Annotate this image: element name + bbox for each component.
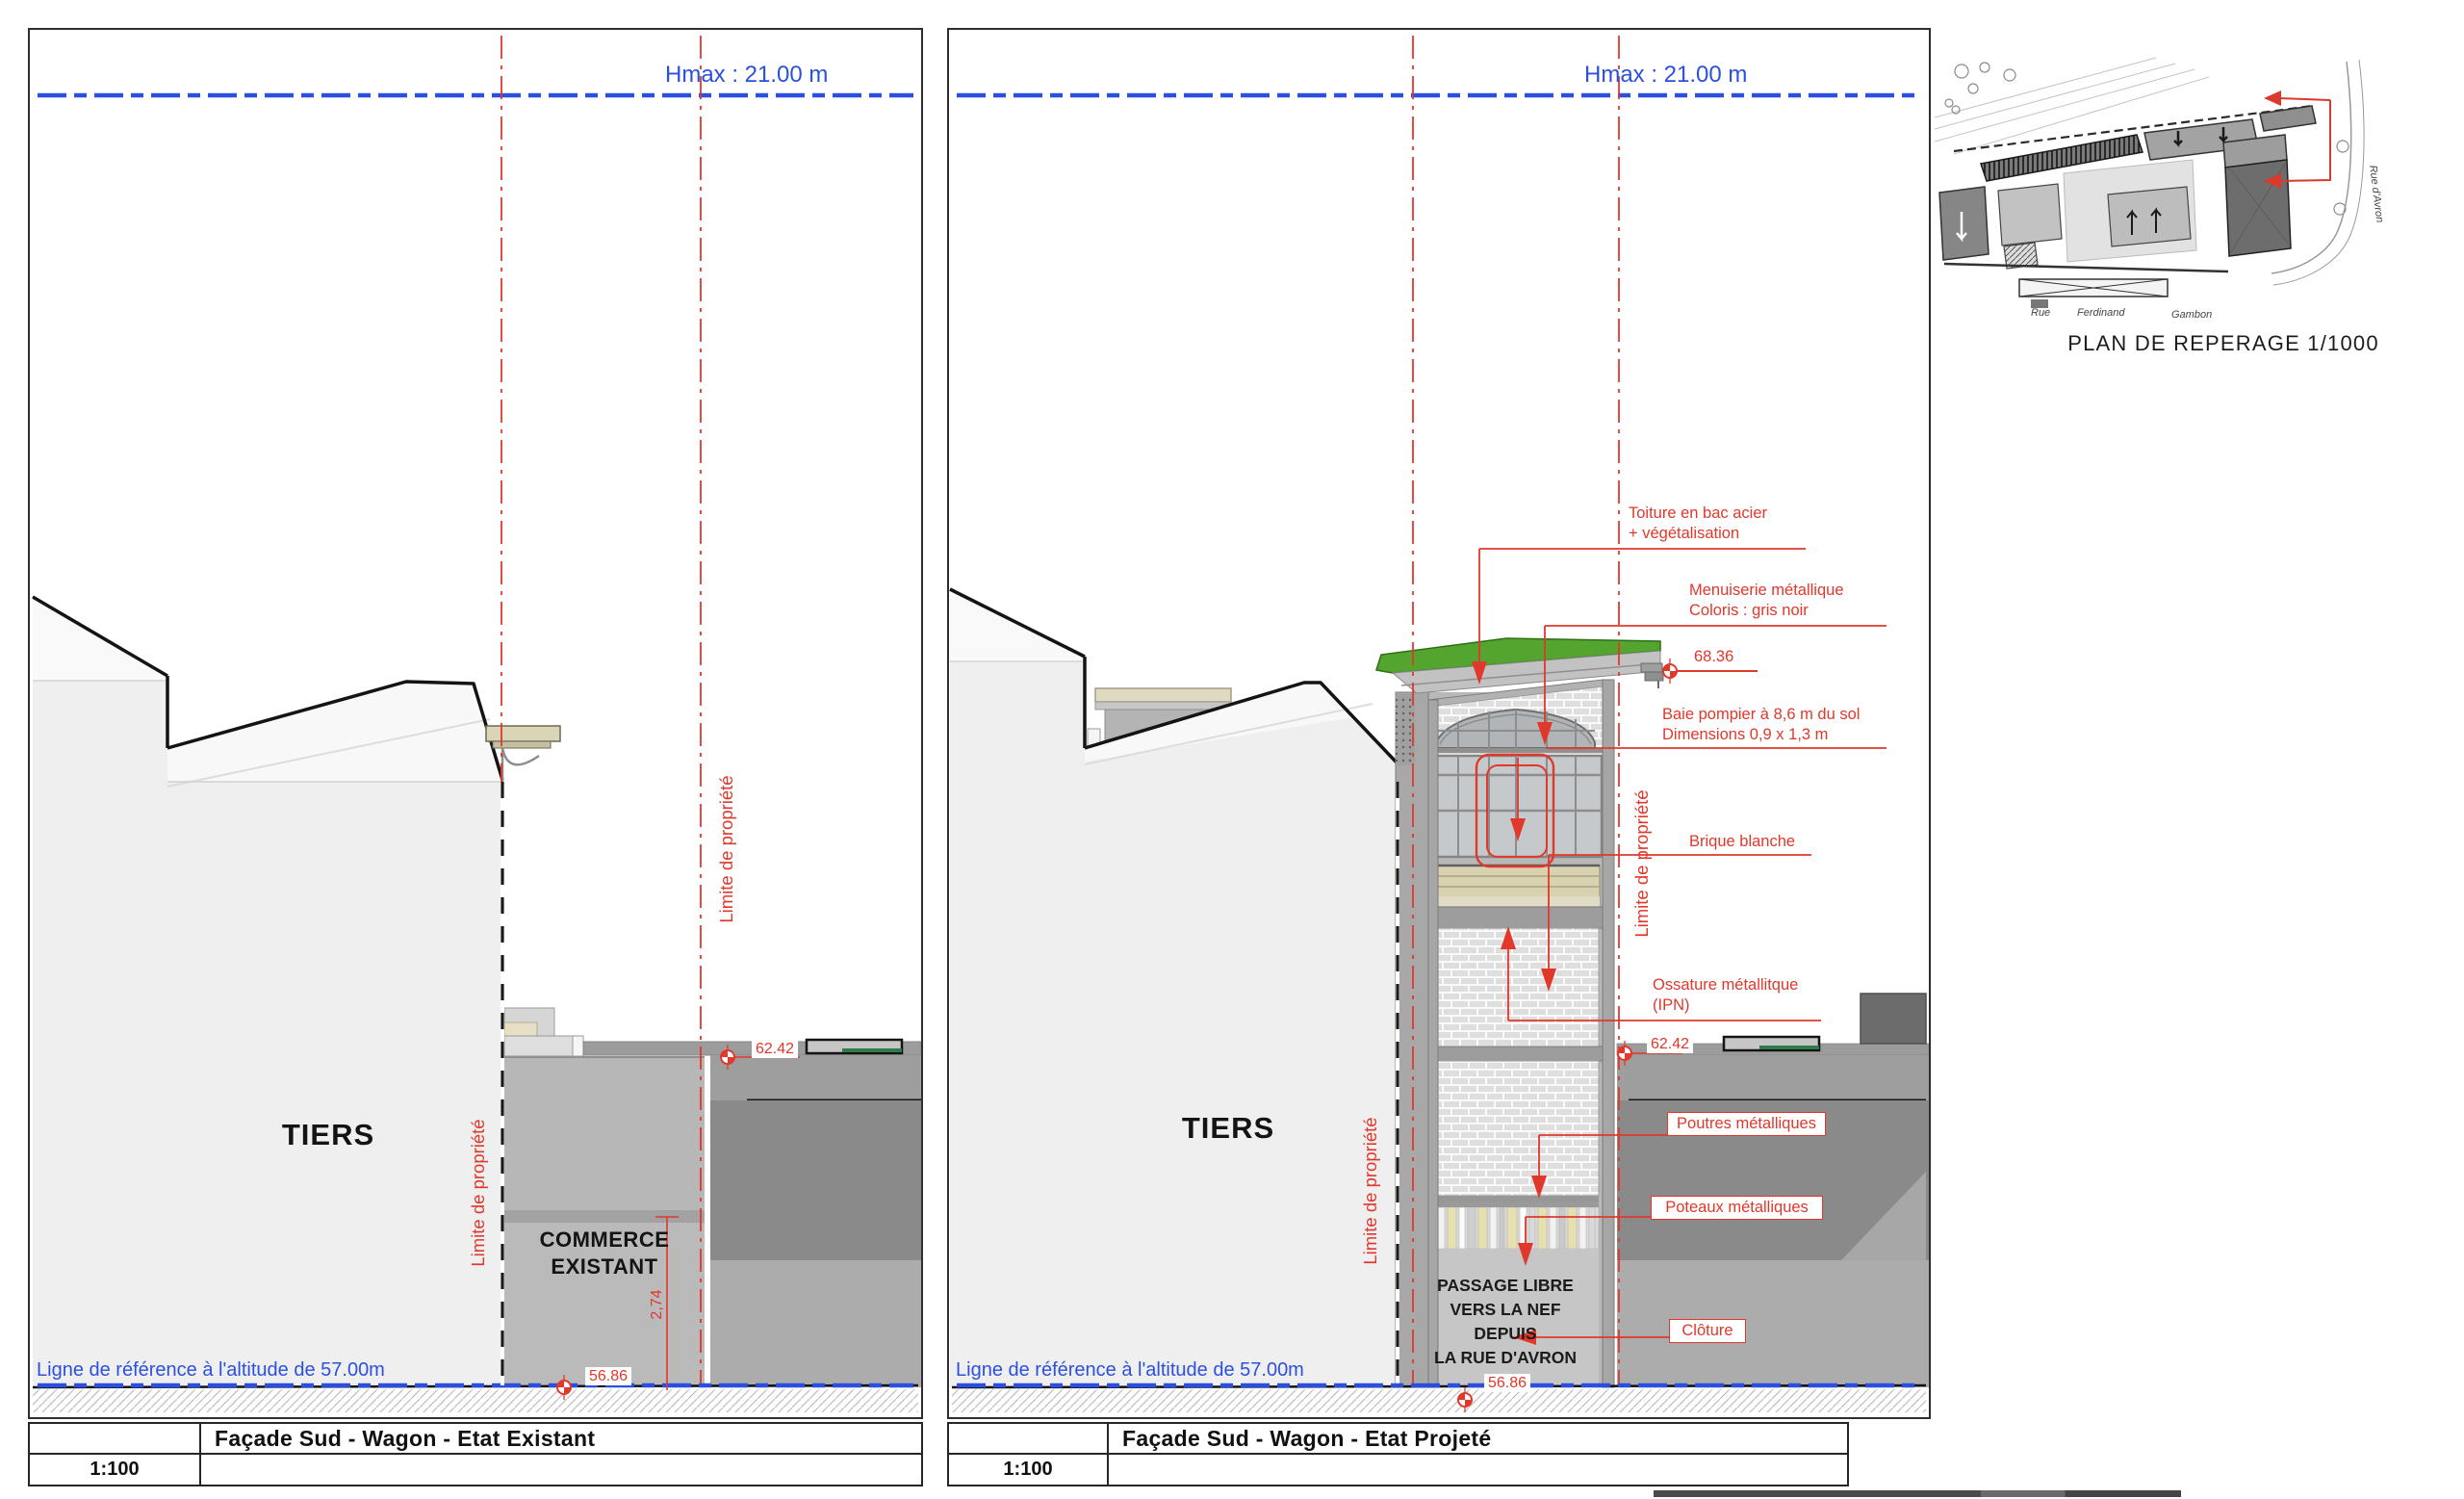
scale-cell-empty (201, 1455, 921, 1485)
drawing-title: Façade Sud - Wagon - Etat Projeté (1122, 1426, 1491, 1452)
street-label-rue: Rue (2031, 307, 2050, 319)
level-5686-label: 56.86 (1484, 1374, 1530, 1392)
annotation-cloture: Clôture (1669, 1319, 1746, 1343)
plan-caption: PLAN DE REPERAGE 1/1000 (2040, 331, 2406, 356)
street-label-ferdinand: Ferdinand (2077, 307, 2125, 319)
title-cell-empty (949, 1424, 1109, 1453)
level-5686-label: 56.86 (585, 1367, 631, 1385)
tiers-label: TIERS (1175, 1111, 1281, 1146)
timber-siding (1433, 866, 1600, 907)
passage-line-2: VERS LA NEF DEPUIS (1421, 1298, 1590, 1346)
toiture-line-2: + végétalisation (1629, 524, 1767, 544)
commerce-building (501, 1008, 705, 1387)
property-limit-label-2: Limite de propriété (1630, 758, 1654, 969)
menuiserie-line-2: Coloris : gris noir (1689, 601, 1844, 621)
menuiserie-line-1: Menuiserie métallique (1689, 581, 1844, 601)
annotation-menuiserie: Menuiserie métallique Coloris : gris noi… (1689, 581, 1844, 621)
commerce-label-1: COMMERCE (508, 1228, 701, 1253)
property-limit-label-1: Limite de propriété (467, 1087, 490, 1299)
level-6242-label: 62.42 (1647, 1035, 1693, 1053)
reference-line-label: Ligne de référence à l'altitude de 57.00… (956, 1359, 1304, 1382)
annotation-toiture: Toiture en bac acier + végétalisation (1629, 504, 1767, 544)
annotation-baie: Baie pompier à 8,6 m du sol Dimensions 0… (1662, 705, 1860, 745)
plan-de-reperage: Rue Ferdinand Gambon Rue d'Avron PLAN DE… (1935, 50, 2459, 368)
street-label-gambon: Gambon (2171, 309, 2212, 321)
title-cell-empty (30, 1424, 201, 1453)
passage-label: PASSAGE LIBRE VERS LA NEF DEPUIS LA RUE … (1421, 1274, 1590, 1370)
street-label-avron: Rue d'Avron (2367, 165, 2385, 223)
annotation-poteaux: Poteaux métalliques (1651, 1196, 1823, 1220)
property-limit-label-1: Limite de propriété (1359, 1085, 1382, 1297)
baie-line-1: Baie pompier à 8,6 m du sol (1662, 705, 1860, 725)
passage-line-3: LA RUE D'AVRON (1421, 1346, 1590, 1370)
green-roof (1376, 638, 1663, 693)
drawing-scale: 1:100 (90, 1459, 139, 1481)
column-row (1433, 1203, 1599, 1249)
scale-cell-empty (1109, 1455, 1847, 1485)
hmax-label: Hmax : 21.00 m (1584, 62, 1747, 89)
ground (33, 1385, 918, 1412)
panel-etat-projete: Hmax : 21.00 m TIERS Limite de propriété… (947, 28, 1931, 1419)
panel-etat-existant: Hmax : 21.00 m TIERS Limite de propriété… (28, 28, 923, 1419)
cropped-bottom-content (1654, 1490, 2181, 1497)
ossature-line-2: (IPN) (1653, 995, 1798, 1016)
title-block-projete: Façade Sud - Wagon - Etat Projeté 1:100 (947, 1422, 1849, 1486)
tiers-building (33, 597, 502, 1387)
commerce-label-2: EXISTANT (508, 1254, 701, 1279)
ossature-line-1: Ossature métallitque (1653, 975, 1798, 995)
baie-line-2: Dimensions 0,9 x 1,3 m (1662, 725, 1860, 745)
annotation-brique: Brique blanche (1689, 832, 1795, 852)
annotation-poutres: Poutres métalliques (1667, 1112, 1826, 1136)
drawing-scale: 1:100 (1003, 1459, 1052, 1481)
tiers-label: TIERS (280, 1118, 376, 1152)
drawing-sheet: Hmax : 21.00 m TIERS Limite de propriété… (0, 0, 2464, 1499)
reference-line-label: Ligne de référence à l'altitude de 57.00… (37, 1359, 385, 1382)
title-block-existant: Façade Sud - Wagon - Etat Existant 1:100 (28, 1422, 923, 1486)
plan-buildings (1939, 106, 2316, 308)
level-6836-label: 68.36 (1694, 647, 1733, 667)
passage-line-1: PASSAGE LIBRE (1421, 1274, 1590, 1298)
toiture-line-1: Toiture en bac acier (1629, 504, 1767, 524)
level-6242-label: 62.42 (752, 1040, 798, 1058)
ground (952, 1385, 1926, 1412)
hmax-label: Hmax : 21.00 m (665, 62, 828, 89)
site-plan: Rue Ferdinand Gambon Rue d'Avron (1935, 50, 2459, 331)
property-limit-label-2: Limite de propriété (715, 743, 738, 955)
annotation-ossature: Ossature métallitque (IPN) (1653, 975, 1798, 1016)
dim-274-label: 2,74 (646, 1276, 669, 1333)
drawing-title: Façade Sud - Wagon - Etat Existant (215, 1426, 595, 1452)
